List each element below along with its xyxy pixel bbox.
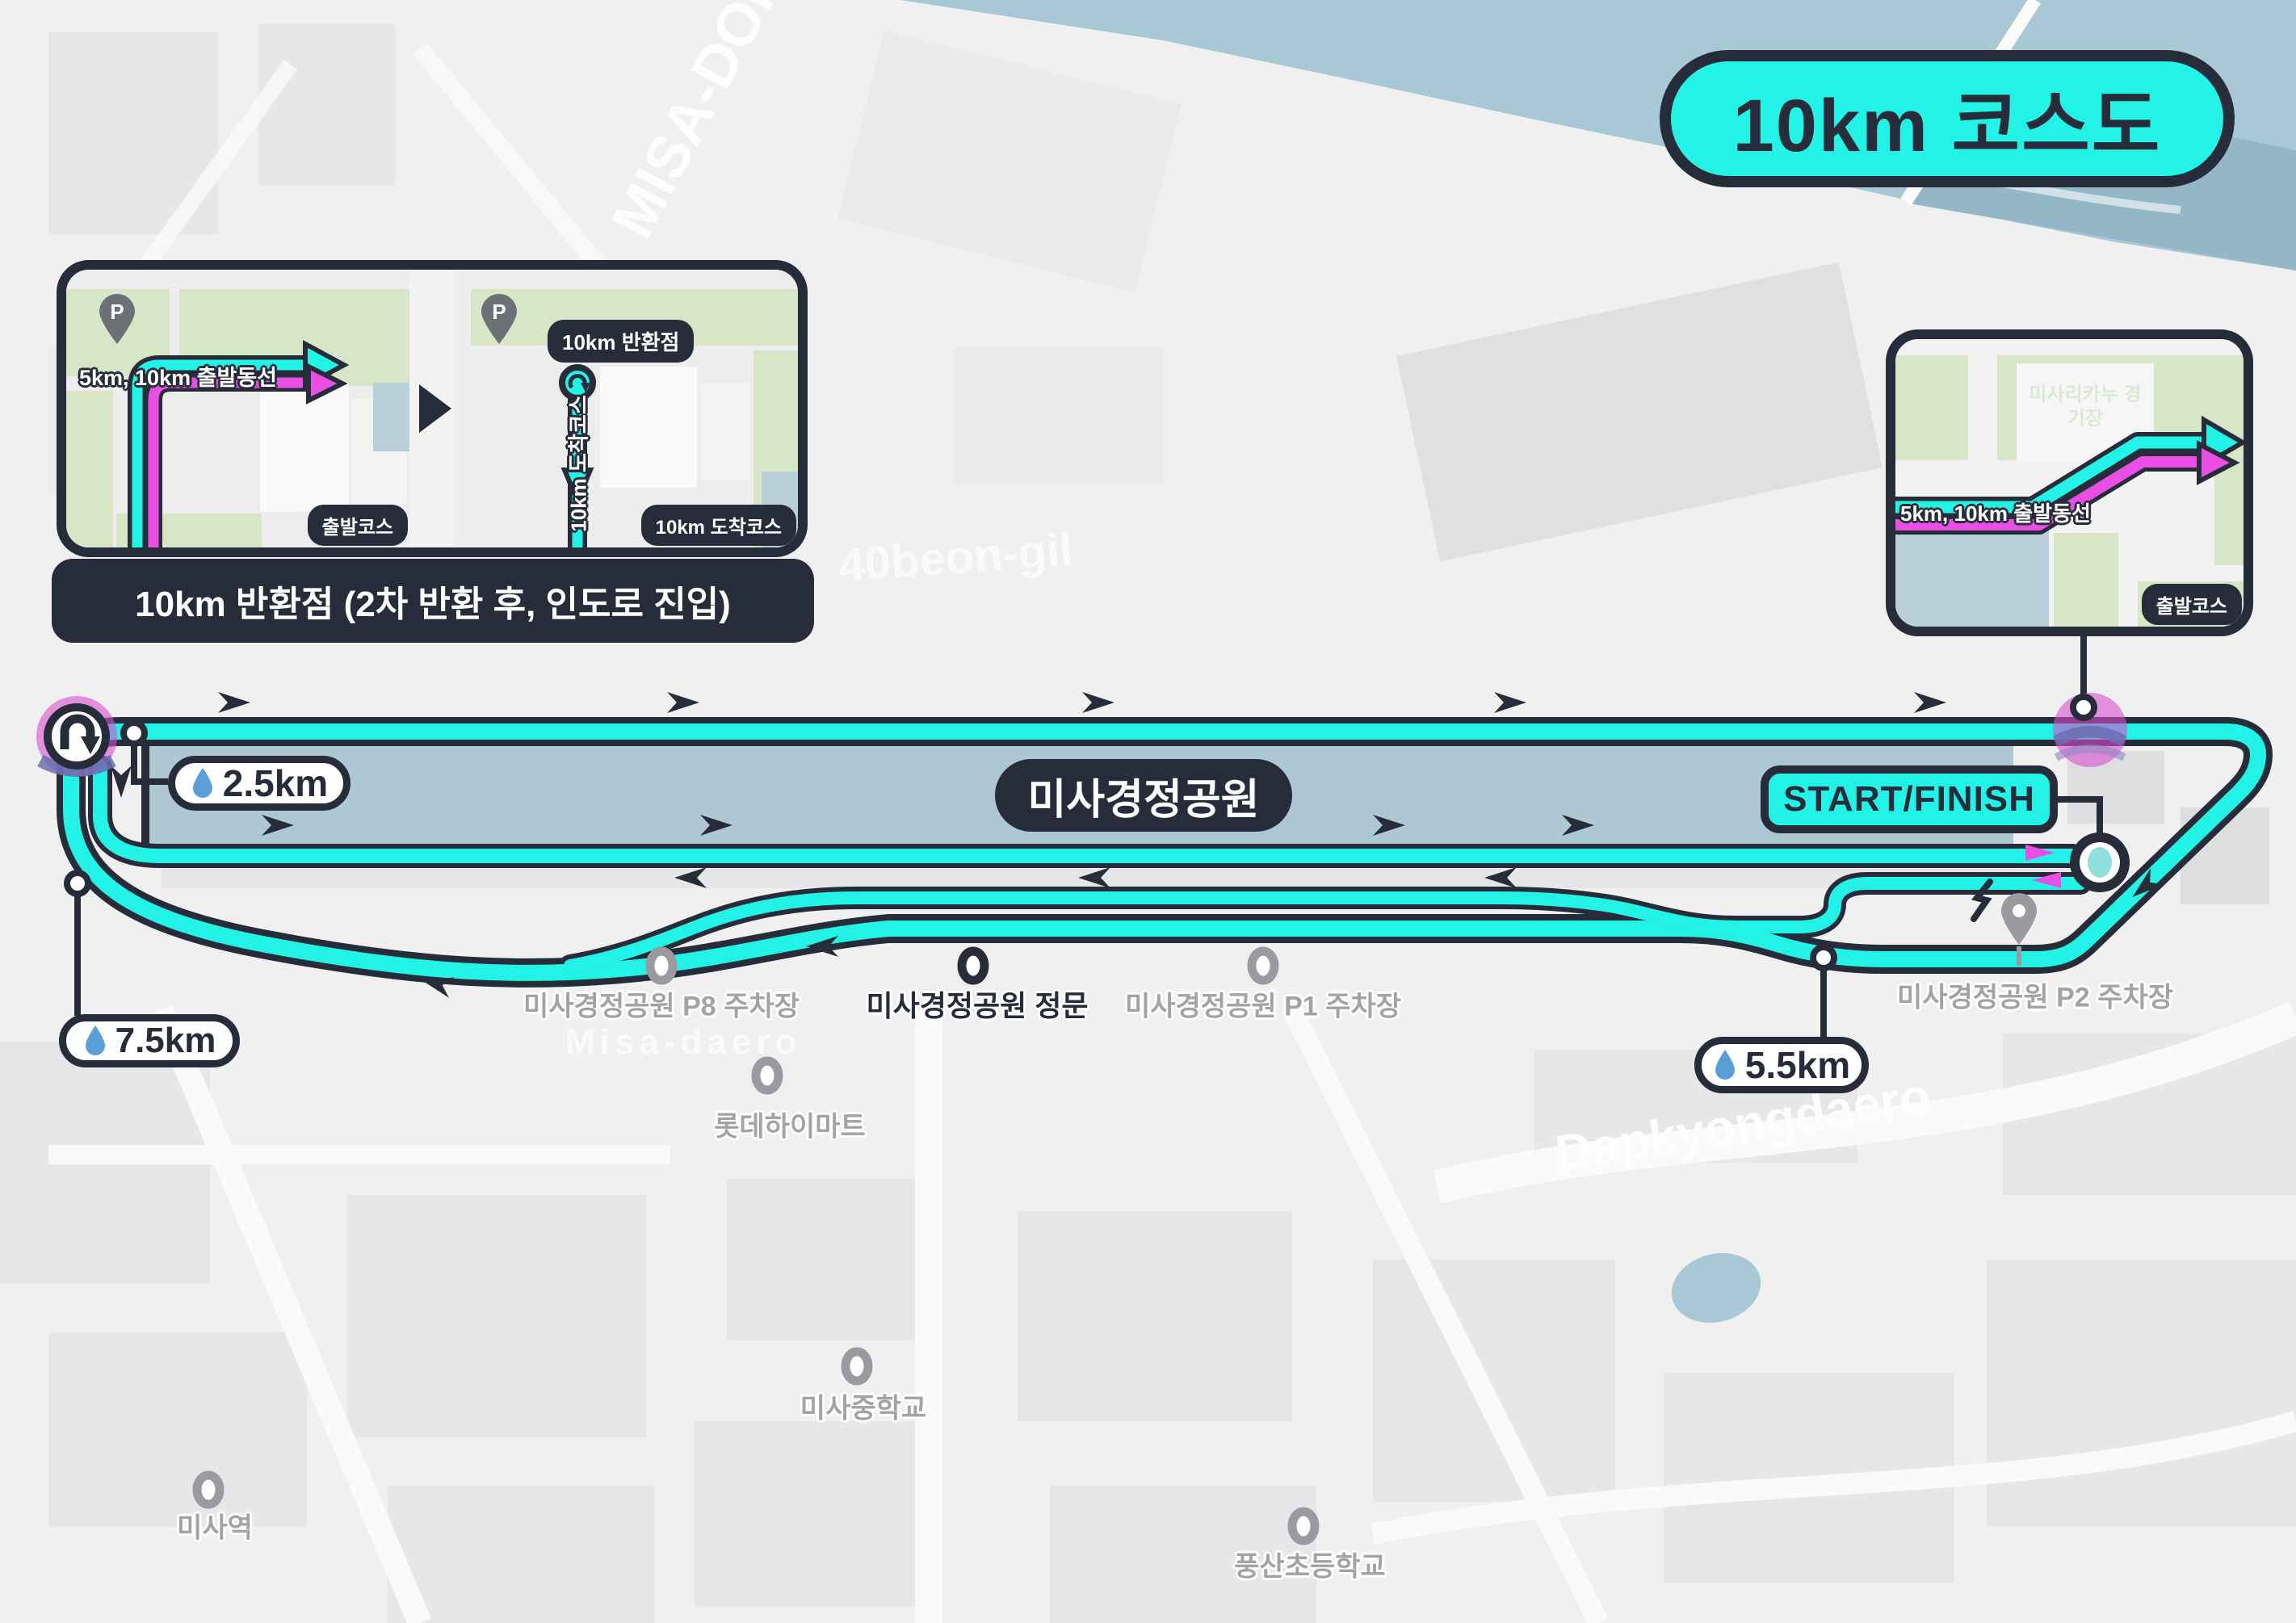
park-name: 미사경정공원 [1027,765,1259,826]
water-drop-icon [191,767,215,799]
middle-school-marker [846,1352,868,1381]
start-finish-badge: START/FINISH [1761,765,2058,833]
next-step-arrow-icon [416,383,453,434]
water-drop-icon [83,1025,107,1057]
start-finish-circle [2075,837,2125,887]
parking-pin-icon: P [97,292,137,346]
station-marker [197,1475,220,1504]
water-station-distance: 5.5km [1745,1043,1850,1087]
water-station-distance: 7.5km [115,1021,216,1061]
start-course-chip: 출발코스 [2142,584,2242,625]
pond [1664,1243,1769,1332]
turnaround-caption: 10km 반환점 (2차 반환 후, 인도로 진입) [135,575,731,627]
map-title: 10km 코스도 [1733,65,2162,173]
label-misa-station: 미사역 [177,1506,253,1545]
label-p2-parking: 미사경정공원 P2 주차장 [1897,975,2173,1015]
svg-text:P: P [492,300,506,324]
turnaround-marker [36,696,117,777]
svg-text:P: P [110,300,124,324]
elementary-marker [1292,1512,1315,1541]
label-elementary-school: 풍산초등학교 [1234,1545,1386,1584]
water-station-7-5km: 7.5km [59,1014,240,1067]
start-course-chip: 출발코스 [308,505,408,546]
himart-marker [756,1061,779,1090]
p8-marker [650,951,673,980]
arrival-course-chip: 10km 도착코스 [641,505,796,546]
course-map-poster: MISA-DONG 미사동 40beon-gil Misa-daero Dapk… [0,0,2296,1623]
return-route-label: 10km 도착코스 [563,395,593,531]
label-middle-school: 미사중학교 [800,1386,926,1426]
watermark-road-misa: Misa-daero [565,1022,801,1062]
water-station-5-5km: 5.5km [1694,1037,1869,1093]
start-route-label: 5km, 10km 출발동선 [79,360,277,392]
park-name-badge: 미사경정공원 [995,759,1292,832]
water-station-2-5km: 2.5km [168,756,350,811]
gate-marker [962,951,984,980]
start-finish-label: START/FINISH [1783,779,2035,820]
water-station-distance: 2.5km [223,761,328,805]
watermark-road-40: 40beon-gil [837,523,1074,592]
watermark-district: MISA-DONG [598,0,821,249]
water-drop-icon [1713,1049,1737,1081]
label-p1-parking: 미사경정공원 P1 주차장 [1125,984,1401,1024]
turnaround-caption-bar: 10km 반환점 (2차 반환 후, 인도로 진입) [52,559,814,643]
start-inset: 미사리카누 경기장 5km, 10km 출발동선 출발코스 [1886,329,2253,636]
turnaround-point-chip: 10km 반환점 [548,320,694,363]
turnaround-inset-right-panel: P 10km 반환점 10km 도착코스 10km 도착코스 [455,270,798,547]
p1-marker [1252,951,1274,980]
map-title-badge: 10km 코스도 [1660,50,2235,187]
turnaround-inset-left-panel: P 5km, 10km 출발동선 출발코스 [66,270,409,547]
parking-pin-icon: P [479,292,519,346]
label-main-gate: 미사경정공원 정문 [867,983,1089,1025]
label-himart: 롯데하이마트 [714,1105,866,1144]
start-route-label: 5km, 10km 출발동선 [1900,497,2091,527]
turnaround-inset: P 5km, 10km 출발동선 출발코스 P 10km 반환점 10km 도착… [57,260,808,557]
label-p8-parking: 미사경정공원 P8 주차장 [523,984,800,1024]
